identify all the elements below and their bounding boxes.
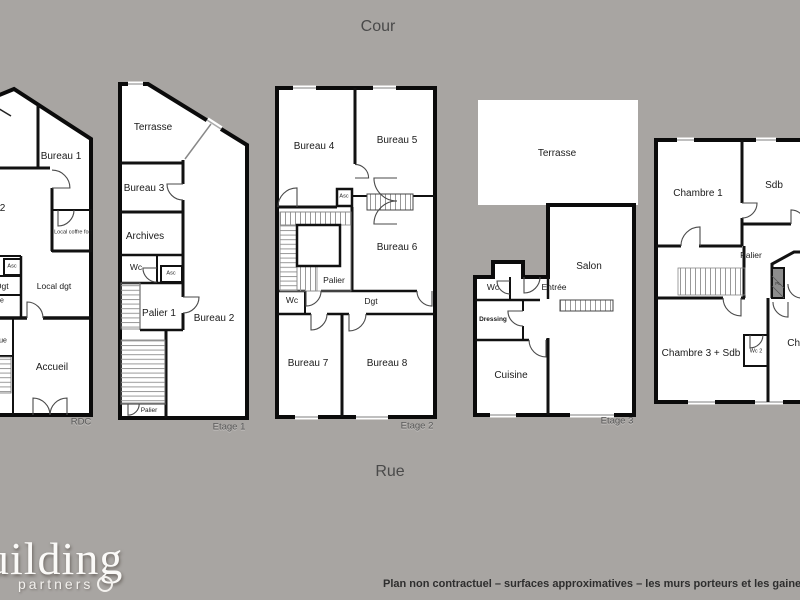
etage1-stairs-upper	[121, 283, 140, 329]
room-label-e4-sdb: Sdb	[765, 181, 783, 191]
room-label-e1-archives: Archives	[126, 232, 164, 242]
room-label-e3-terrasse: Terrasse	[538, 149, 576, 159]
room-label-e4-chambre-1: Chambre 1	[673, 189, 722, 199]
room-label-e2-bureau-6: Bureau 6	[377, 243, 418, 253]
floor-label-rdc: RDC	[71, 417, 92, 428]
room-label-e3-wc: Wc	[487, 283, 499, 292]
room-label-e3-entree: Entrée	[541, 283, 566, 292]
floor-plan-sheet: Cour Rue Bureau 1 Bureau 2 Local coffre …	[0, 0, 800, 600]
plan-etage1	[120, 84, 247, 418]
room-label-e2-dgt: Dgt	[364, 297, 377, 306]
room-label-e2-palier: Palier	[323, 276, 345, 285]
room-label-e1-wc: Wc	[130, 263, 142, 272]
room-label-e1-terrasse: Terrasse	[134, 123, 172, 133]
room-label-e1-palier-1: Palier 1	[142, 309, 176, 319]
disclaimer-text: Plan non contractuel – surfaces approxim…	[383, 578, 800, 590]
room-label-rdc-bureau-2: Bureau 2	[0, 204, 5, 214]
room-label-e4-chambre-3-sdb: Chambre 3 + Sdb	[662, 349, 741, 359]
room-label-e1-asc: Asc	[166, 271, 175, 277]
agency-logo-sub: partners	[18, 576, 93, 592]
logo-ring-icon	[97, 576, 113, 592]
orientation-label-rue: Rue	[375, 463, 404, 481]
room-label-e3-salon: Salon	[576, 262, 602, 272]
room-label-e2-bureau-7: Bureau 7	[288, 359, 329, 369]
agency-logo: building partners	[0, 536, 123, 592]
room-label-e2-bureau-4: Bureau 4	[294, 142, 335, 152]
room-label-e4-palier: Palier	[740, 251, 762, 260]
rdc-stairs	[0, 357, 11, 393]
room-label-rdc-fragment-e: e	[0, 298, 4, 305]
room-label-e3-cuisine: Cuisine	[494, 371, 527, 381]
room-label-e4-chambre-2: Chambre 2	[787, 339, 800, 349]
etage1-stairs-lower	[121, 340, 165, 403]
room-label-rdc-accueil: Accueil	[36, 363, 68, 373]
room-label-rdc-local-dgt: Local dgt	[37, 282, 72, 291]
room-label-rdc-bureau-1: Bureau 1	[41, 152, 82, 162]
etage3-radiator	[560, 300, 613, 311]
room-label-e2-bureau-5: Bureau 5	[377, 136, 418, 146]
room-label-rdc-asc: Asc	[7, 264, 16, 270]
floor-label-etage-3: Etage 3	[601, 416, 634, 427]
room-label-e1-bureau-3: Bureau 3	[124, 184, 165, 194]
room-label-e1-bureau-2: Bureau 2	[194, 314, 235, 324]
orientation-label-cour: Cour	[361, 18, 396, 36]
room-label-rdc-fragment-ue: ue	[0, 338, 7, 345]
floor-label-etage-2: Etage 2	[401, 421, 434, 432]
etage4-stairs	[678, 268, 745, 295]
room-label-e3-dressing: Dressing	[479, 317, 507, 324]
room-label-e4-wc-2: Wc 2	[750, 349, 763, 355]
room-label-e1-palier: Palier	[141, 408, 158, 415]
room-label-e4-pl: PL	[775, 282, 781, 287]
room-label-rdc-local-coffre-fort: Local coffre fort	[54, 230, 92, 236]
floor-label-etage-1: Etage 1	[213, 422, 246, 433]
room-label-e2-asc: Asc	[339, 194, 348, 200]
room-label-e2-bureau-8: Bureau 8	[367, 359, 408, 369]
room-label-rdc-dgt: Dgt	[0, 282, 9, 291]
room-label-e2-wc: Wc	[286, 296, 298, 305]
floor-plans-drawing	[0, 0, 800, 600]
